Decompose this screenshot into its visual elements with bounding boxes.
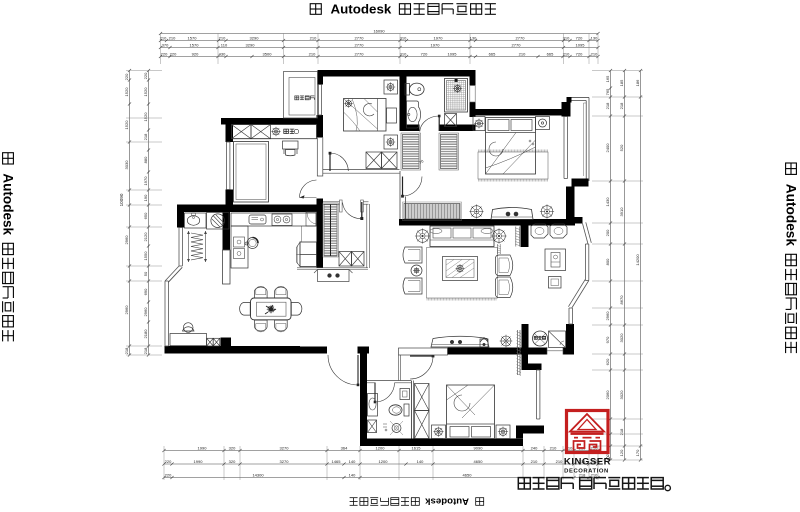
svg-text:10090: 10090 (119, 193, 124, 206)
svg-text:2960: 2960 (143, 307, 148, 317)
svg-text:1970: 1970 (434, 35, 444, 40)
svg-text:310: 310 (400, 51, 407, 56)
svg-text:690: 690 (143, 288, 148, 295)
svg-text:218: 218 (124, 347, 129, 354)
svg-text:620: 620 (605, 358, 610, 365)
svg-text:165: 165 (605, 75, 610, 82)
svg-text:Autodesk: Autodesk (784, 184, 799, 247)
svg-text:4650: 4650 (474, 459, 484, 464)
svg-text:210: 210 (310, 35, 317, 40)
svg-text:218: 218 (619, 428, 624, 435)
svg-text:218: 218 (605, 102, 610, 109)
svg-text:2960: 2960 (124, 305, 129, 315)
svg-text:9090: 9090 (474, 445, 484, 450)
svg-text:2400: 2400 (605, 143, 610, 153)
svg-text:1990: 1990 (194, 459, 204, 464)
svg-text:220: 220 (165, 472, 172, 477)
svg-text:720: 720 (576, 35, 583, 40)
svg-text:970: 970 (605, 336, 610, 343)
svg-text:800: 800 (605, 258, 610, 265)
svg-text:210: 210 (531, 459, 538, 464)
svg-text:1615: 1615 (412, 445, 422, 450)
svg-text:240: 240 (531, 445, 538, 450)
svg-text:200: 200 (605, 229, 610, 236)
svg-text:920: 920 (192, 51, 199, 56)
svg-text:2960: 2960 (605, 311, 610, 321)
svg-text:3910: 3910 (619, 207, 624, 217)
svg-text:430: 430 (219, 51, 226, 56)
svg-text:130: 130 (470, 35, 477, 40)
svg-text:210: 210 (219, 35, 226, 40)
svg-text:370: 370 (162, 42, 169, 47)
svg-text:210: 210 (160, 35, 167, 40)
svg-text:220: 220 (165, 459, 172, 464)
svg-text:210: 210 (309, 51, 316, 56)
svg-text:3020: 3020 (619, 390, 624, 400)
svg-text:140: 140 (349, 459, 356, 464)
svg-text:16090: 16090 (373, 28, 385, 33)
svg-text:186: 186 (635, 79, 640, 86)
svg-text:320: 320 (229, 459, 236, 464)
svg-text:3020: 3020 (619, 333, 624, 343)
svg-text:185: 185 (619, 79, 624, 86)
svg-text:1970: 1970 (143, 176, 148, 186)
svg-text:3030: 3030 (124, 160, 129, 170)
svg-text:220: 220 (170, 51, 177, 56)
svg-text:50: 50 (143, 271, 148, 276)
svg-text:2770: 2770 (355, 35, 365, 40)
svg-text:650: 650 (143, 212, 148, 219)
svg-text:14300: 14300 (252, 472, 264, 477)
svg-text:665: 665 (547, 51, 554, 56)
svg-text:1430: 1430 (605, 197, 610, 207)
svg-text:190: 190 (143, 194, 148, 201)
svg-text:320: 320 (229, 445, 236, 450)
svg-text:1520: 1520 (143, 87, 148, 97)
svg-text:KINGSER: KINGSER (564, 457, 611, 468)
svg-text:2770: 2770 (516, 35, 526, 40)
svg-text:520: 520 (619, 144, 624, 151)
svg-text:364: 364 (341, 445, 348, 450)
svg-text:1520: 1520 (143, 112, 148, 122)
svg-text:3270: 3270 (280, 445, 290, 450)
svg-text:210: 210 (556, 459, 563, 464)
svg-text:2180: 2180 (143, 329, 148, 339)
svg-text:DECORATION: DECORATION (564, 468, 609, 474)
svg-text:210: 210 (519, 51, 526, 56)
svg-text:720: 720 (421, 51, 428, 56)
svg-text:765: 765 (605, 88, 610, 95)
svg-text:130: 130 (591, 35, 598, 40)
svg-text:1095: 1095 (448, 51, 458, 56)
svg-text:110: 110 (221, 42, 228, 47)
svg-text:310: 310 (400, 35, 407, 40)
svg-text:1570: 1570 (190, 42, 200, 47)
svg-text:Autodesk: Autodesk (1, 173, 16, 235)
svg-text:218: 218 (143, 133, 148, 140)
svg-text:310: 310 (563, 35, 570, 40)
svg-text:220: 220 (124, 73, 129, 80)
svg-text:1990: 1990 (198, 445, 208, 450)
svg-text:1570: 1570 (188, 35, 198, 40)
svg-text:210: 210 (591, 51, 598, 56)
svg-text:Autodesk: Autodesk (331, 1, 392, 16)
svg-text:Autodesk: Autodesk (425, 495, 470, 506)
svg-text:1550: 1550 (143, 251, 148, 261)
svg-text:1970: 1970 (431, 42, 441, 47)
svg-text:140: 140 (417, 459, 424, 464)
svg-text:880: 880 (143, 156, 148, 163)
svg-text:1095: 1095 (576, 42, 586, 47)
svg-text:1520: 1520 (124, 87, 129, 97)
svg-text:210: 210 (563, 51, 570, 56)
svg-text:140: 140 (349, 472, 356, 477)
svg-text:3500: 3500 (263, 51, 273, 56)
svg-text:3290: 3290 (246, 42, 256, 47)
svg-text:2770: 2770 (355, 51, 365, 56)
svg-text:220: 220 (143, 72, 148, 79)
svg-text:720: 720 (576, 51, 583, 56)
svg-text:3290: 3290 (250, 35, 260, 40)
svg-text:170: 170 (635, 449, 640, 456)
svg-text:2770: 2770 (512, 42, 522, 47)
svg-text:3270: 3270 (280, 459, 290, 464)
svg-text:1200: 1200 (379, 459, 389, 464)
svg-text:1465: 1465 (332, 459, 342, 464)
svg-text:120: 120 (619, 449, 624, 456)
svg-text:2960: 2960 (124, 235, 129, 245)
svg-text:665: 665 (489, 51, 496, 56)
svg-text:14200: 14200 (635, 254, 640, 266)
svg-text:1200: 1200 (376, 445, 386, 450)
svg-text:210: 210 (550, 445, 557, 450)
svg-text:2060: 2060 (605, 390, 610, 400)
svg-text:2770: 2770 (355, 42, 365, 47)
svg-text:8670: 8670 (619, 295, 624, 305)
svg-text:218: 218 (143, 347, 148, 354)
svg-text:218: 218 (619, 102, 624, 109)
svg-text:210: 210 (169, 35, 176, 40)
svg-text:2120: 2120 (143, 232, 148, 242)
svg-text:4650: 4650 (463, 472, 473, 477)
svg-text:220: 220 (161, 51, 168, 56)
svg-text:1520: 1520 (124, 120, 129, 130)
